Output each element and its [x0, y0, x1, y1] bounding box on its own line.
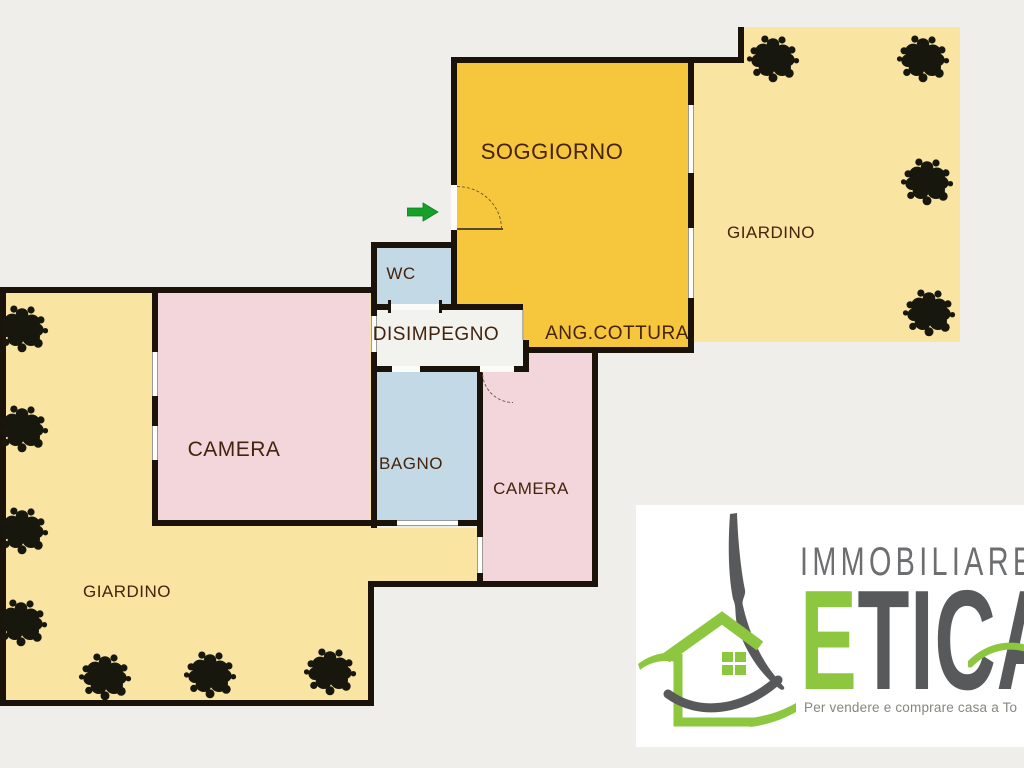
room-label-disimpegno: DISIMPEGNO: [373, 324, 499, 346]
wall: [592, 353, 598, 587]
window: [152, 426, 158, 460]
wall: [688, 57, 694, 353]
agency-logo-house-icon: [638, 508, 798, 736]
door-opening-bagno: [392, 366, 420, 372]
wall: [0, 287, 377, 293]
tree-icon: [900, 154, 954, 208]
entrance-arrow-icon: [407, 202, 439, 222]
wall: [738, 27, 744, 63]
door-jamb: [439, 300, 442, 313]
window: [477, 537, 483, 573]
room-label-camera-2: CAMERA: [493, 479, 569, 499]
room-label-soggiorno: SOGGIORNO: [481, 139, 624, 165]
wall: [371, 242, 377, 528]
garden-label-right: GIARDINO: [727, 223, 815, 243]
room-label-bagno: BAGNO: [379, 454, 443, 474]
tree-icon: [0, 401, 49, 455]
tree-icon: [0, 503, 49, 557]
room-bagno: [377, 372, 477, 522]
room-label-wc: WC: [386, 264, 415, 284]
garden-label-left: GIARDINO: [83, 582, 171, 602]
wall: [371, 242, 457, 248]
door-opening-wc: [390, 304, 440, 310]
tree-icon: [896, 31, 950, 85]
window: [397, 520, 458, 526]
opening-line: [522, 310, 524, 340]
tree-icon: [78, 649, 132, 703]
tree-icon: [0, 301, 49, 355]
agency-logo-leaf-swoosh-icon: [968, 636, 1024, 670]
door-leaf-entrance: [457, 228, 503, 230]
tree-icon: [303, 644, 357, 698]
agency-logo-tagline: Per vendere e comprare casa a To: [804, 701, 1017, 715]
garden-left-fill: [372, 528, 478, 584]
wall: [371, 366, 392, 372]
wall: [514, 366, 529, 372]
wall: [420, 366, 480, 372]
door-jamb: [388, 300, 391, 313]
room-label-camera-1: CAMERA: [188, 438, 281, 462]
window: [688, 105, 694, 173]
floor-plan: SOGGIORNO ANG.COTTURA WC DISIMPEGNO CAME…: [0, 0, 1024, 768]
agency-logo-wordmark-first-letter: E: [800, 561, 857, 720]
wall: [451, 57, 457, 185]
room-label-ang-cottura: ANG.COTTURA: [545, 323, 689, 345]
wall: [368, 581, 598, 587]
room-camera-1: [158, 292, 370, 522]
tree-icon: [902, 285, 956, 339]
tree-icon: [183, 647, 237, 701]
window: [152, 352, 158, 396]
wall: [523, 347, 694, 353]
tree-icon: [746, 31, 800, 85]
wall: [440, 304, 523, 310]
wall: [152, 287, 158, 526]
tree-icon: [0, 595, 48, 649]
window: [688, 228, 694, 298]
wall: [368, 581, 374, 706]
wall: [451, 57, 744, 63]
